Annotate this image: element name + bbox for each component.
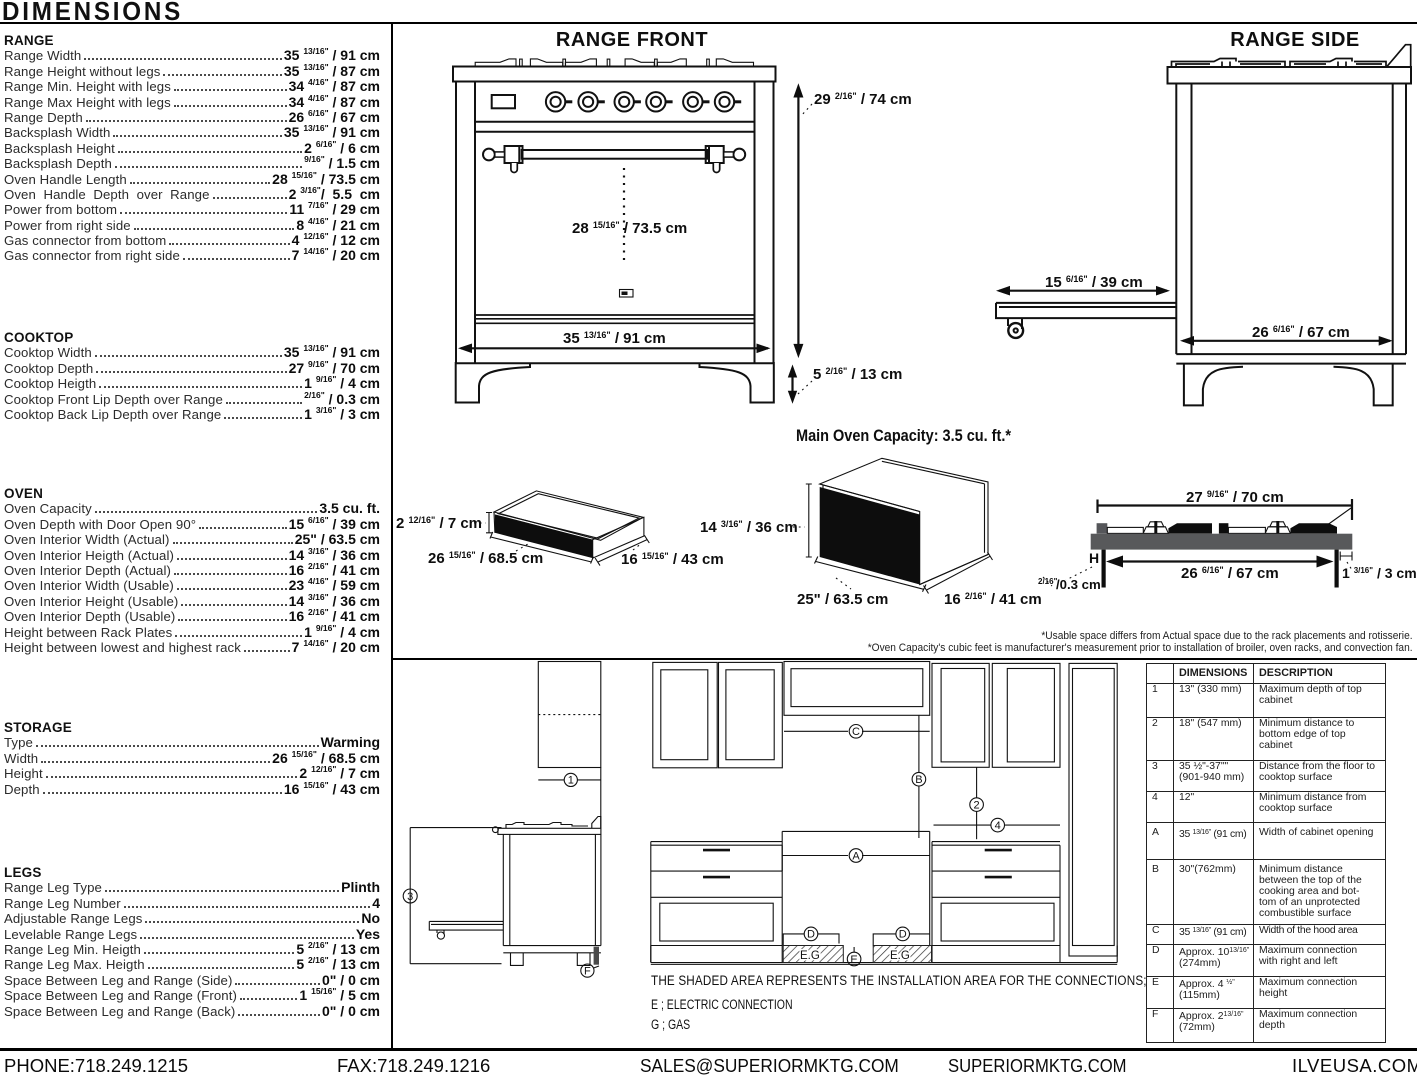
svg-text:D: D [807, 929, 815, 941]
svg-text:C: C [852, 726, 860, 738]
svg-text:F: F [584, 965, 591, 977]
svg-text:1 3/16" / 3 cm: 1 3/16" / 3 cm [1342, 565, 1417, 581]
svg-text:A: A [852, 850, 860, 862]
svg-text:26 15/16" / 68.5 cm: 26 15/16" / 68.5 cm [428, 550, 543, 567]
svg-text:14 3/16" / 36 cm: 14 3/16" / 36 cm [700, 519, 798, 536]
svg-text:B: B [915, 774, 922, 786]
svg-text:RANGE FRONT: RANGE FRONT [556, 29, 708, 51]
svg-text:D: D [899, 929, 907, 941]
svg-text:27 9/16" / 70 cm: 27 9/16" / 70 cm [1186, 489, 1284, 506]
svg-text:16 2/16" / 41 cm: 16 2/16" / 41 cm [944, 591, 1042, 608]
svg-text:29 2/16" / 74 cm: 29 2/16" / 74 cm [814, 91, 912, 108]
svg-text:/0.3 cm: /0.3 cm [1056, 577, 1101, 592]
svg-text:RANGE SIDE: RANGE SIDE [1230, 29, 1359, 51]
svg-text:Main Oven Capacity: 3.5 cu. ft: Main Oven Capacity: 3.5 cu. ft.* [796, 426, 1011, 445]
svg-text:16 15/16" / 43 cm: 16 15/16" / 43 cm [621, 551, 724, 568]
svg-text:28 15/16" / 73.5 cm: 28 15/16" / 73.5 cm [572, 220, 687, 237]
svg-text:2/16": 2/16" [1038, 577, 1058, 586]
svg-text:26 6/16" / 67 cm: 26 6/16" / 67 cm [1252, 324, 1350, 341]
svg-text:1: 1 [568, 775, 574, 787]
svg-text:15 6/16" / 39 cm: 15 6/16" / 39 cm [1045, 274, 1143, 291]
svg-text:26 6/16" / 67 cm: 26 6/16" / 67 cm [1181, 565, 1279, 582]
svg-text:5 2/16" / 13 cm: 5 2/16" / 13 cm [813, 366, 902, 383]
svg-text:E.G: E.G [890, 950, 910, 962]
svg-text:35 13/16" / 91 cm: 35 13/16" / 91 cm [563, 330, 666, 347]
svg-text:E: E [850, 954, 857, 966]
svg-text:H: H [1089, 550, 1099, 566]
svg-text:4: 4 [995, 820, 1001, 832]
svg-text:2 12/16" / 7 cm: 2 12/16" / 7 cm [396, 515, 482, 532]
svg-text:3: 3 [407, 891, 413, 903]
svg-text:25" / 63.5 cm: 25" / 63.5 cm [797, 591, 888, 608]
svg-text:2: 2 [974, 799, 980, 811]
svg-text:E.G: E.G [800, 950, 820, 962]
